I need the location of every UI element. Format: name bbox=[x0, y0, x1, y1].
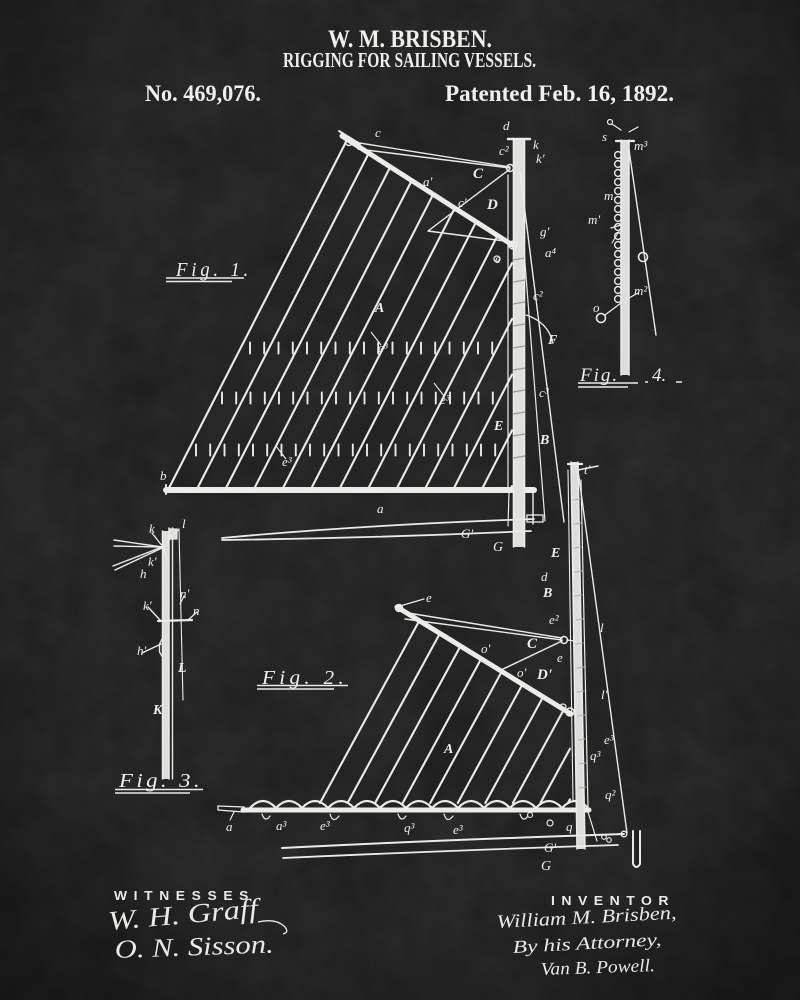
svg-text:c³: c³ bbox=[539, 385, 550, 400]
svg-text:h': h' bbox=[137, 643, 147, 658]
svg-text:q²: q² bbox=[605, 787, 617, 802]
svg-text:c': c' bbox=[458, 195, 467, 210]
svg-text:E: E bbox=[550, 546, 560, 561]
svg-text:G: G bbox=[493, 540, 503, 555]
svg-text:Patented Feb. 16, 1892.: Patented Feb. 16, 1892. bbox=[445, 81, 674, 106]
svg-text:D': D' bbox=[536, 667, 552, 683]
svg-text:e³: e³ bbox=[453, 822, 464, 837]
svg-text:E: E bbox=[493, 419, 503, 434]
svg-text:a': a' bbox=[423, 174, 433, 189]
svg-text:e: e bbox=[426, 590, 432, 605]
svg-text:e³: e³ bbox=[320, 818, 331, 833]
svg-text:A: A bbox=[443, 742, 453, 757]
svg-text:g': g' bbox=[540, 224, 550, 239]
svg-text:L: L bbox=[177, 661, 187, 676]
svg-text:m²: m² bbox=[634, 283, 648, 298]
svg-text:s: s bbox=[602, 129, 607, 144]
svg-text:a⁴: a⁴ bbox=[545, 245, 557, 260]
svg-text:No. 469,076.: No. 469,076. bbox=[145, 81, 261, 106]
svg-text:a: a bbox=[226, 819, 233, 834]
svg-text:k': k' bbox=[148, 554, 157, 569]
svg-text:d: d bbox=[503, 118, 510, 133]
svg-text:B: B bbox=[542, 586, 552, 601]
svg-text:m': m' bbox=[588, 212, 600, 227]
svg-text:o': o' bbox=[517, 665, 527, 680]
svg-text:Van B. Powell.: Van B. Powell. bbox=[540, 955, 655, 979]
svg-text:G': G' bbox=[544, 840, 556, 855]
svg-text:l: l bbox=[600, 620, 604, 635]
svg-text:e²: e² bbox=[549, 612, 560, 627]
svg-text:o': o' bbox=[481, 641, 491, 656]
svg-text:Fig. 3.: Fig. 3. bbox=[118, 770, 203, 792]
svg-text:G': G' bbox=[461, 526, 473, 541]
svg-text:a: a bbox=[377, 501, 384, 516]
svg-text:o: o bbox=[593, 300, 600, 315]
svg-text:k: k bbox=[533, 137, 539, 152]
svg-text:k': k' bbox=[143, 598, 152, 613]
svg-text:e³: e³ bbox=[378, 340, 389, 355]
svg-text:q: q bbox=[566, 819, 573, 834]
svg-text:b: b bbox=[160, 468, 167, 483]
svg-text:h: h bbox=[140, 566, 147, 581]
svg-text:O. N. Sisson.: O. N. Sisson. bbox=[114, 929, 274, 964]
svg-text:k': k' bbox=[536, 151, 545, 166]
svg-text:m: m bbox=[604, 188, 613, 203]
svg-text:q³: q³ bbox=[404, 820, 416, 835]
svg-text:A: A bbox=[374, 301, 384, 316]
svg-text:C: C bbox=[473, 166, 484, 182]
svg-text:4.: 4. bbox=[652, 365, 666, 386]
svg-text:k: k bbox=[149, 521, 155, 536]
svg-text:c²: c² bbox=[533, 288, 544, 303]
svg-text:m³: m³ bbox=[634, 138, 648, 153]
svg-text:q³: q³ bbox=[590, 748, 602, 763]
svg-text:F: F bbox=[547, 333, 558, 348]
svg-text:e³: e³ bbox=[440, 392, 451, 407]
svg-text:l': l' bbox=[601, 687, 608, 702]
svg-text:e: e bbox=[557, 650, 563, 665]
svg-text:n': n' bbox=[180, 586, 190, 601]
svg-text:e: e bbox=[495, 251, 501, 266]
svg-text:RIGGING FOR SAILING VESSELS.: RIGGING FOR SAILING VESSELS. bbox=[283, 48, 536, 72]
svg-text:d: d bbox=[541, 569, 548, 584]
svg-text:C: C bbox=[527, 636, 538, 652]
svg-text:G: G bbox=[541, 859, 551, 874]
svg-text:t': t' bbox=[584, 462, 591, 477]
svg-text:K: K bbox=[152, 703, 164, 718]
svg-text:B: B bbox=[539, 433, 549, 448]
svg-text:c²: c² bbox=[499, 143, 510, 158]
svg-text:n: n bbox=[193, 603, 200, 618]
svg-text:e³: e³ bbox=[604, 732, 615, 747]
svg-text:D: D bbox=[486, 197, 498, 213]
svg-text:l: l bbox=[182, 516, 186, 531]
svg-text:a³: a³ bbox=[276, 818, 288, 833]
svg-text:c: c bbox=[375, 125, 381, 140]
